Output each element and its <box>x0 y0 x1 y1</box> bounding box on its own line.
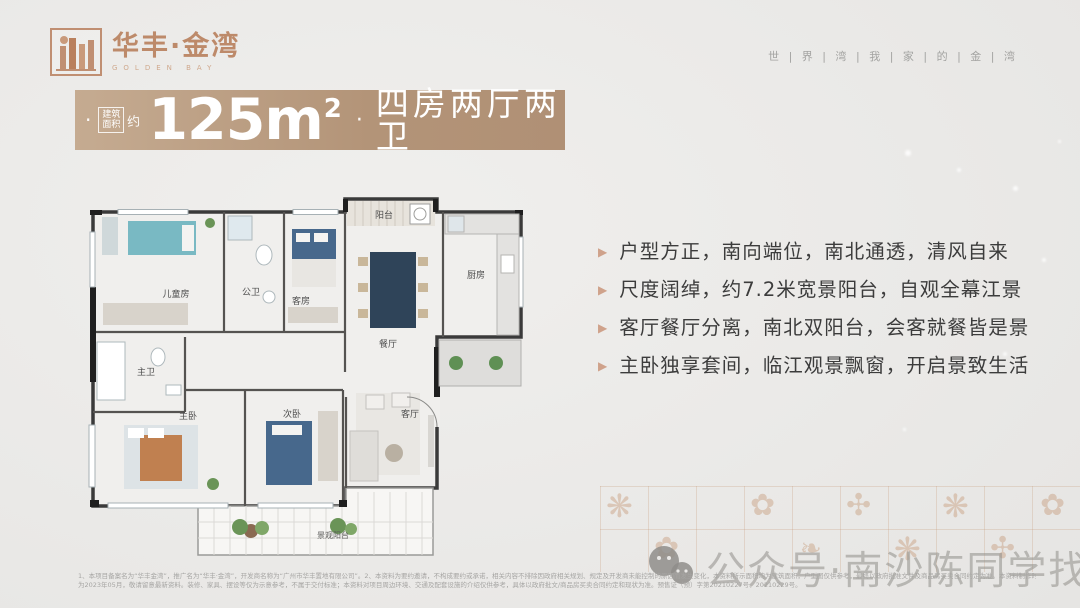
selling-point-text: 主卧独享套间，临江观景飘窗，开启景致生活 <box>619 354 1029 377</box>
room-label-kitchen: 厨房 <box>467 269 485 281</box>
brand-seal-icon <box>50 28 102 76</box>
room-label-guest-room: 客房 <box>292 295 310 307</box>
area-tag-box: 建筑 面积 <box>98 107 124 133</box>
area-tag-line1: 建筑 <box>102 110 120 120</box>
selling-point-text: 户型方正，南向端位，南北通透，清风自来 <box>619 240 1009 263</box>
selling-point-item: ▶ 户型方正，南向端位，南北通透，清风自来 <box>598 240 1029 263</box>
room-label-balcony-north: 阳台 <box>375 209 393 221</box>
area-tag-line2: 面积 <box>102 120 120 130</box>
room-label-master-bedroom: 主卧 <box>179 410 197 422</box>
second-bedroom-furniture <box>266 411 338 485</box>
guest-room-furniture <box>288 229 338 323</box>
triangle-bullet-icon: ▶ <box>598 360 607 372</box>
lattice-ornament <box>750 491 775 521</box>
lattice-ornament <box>942 490 969 522</box>
lattice-ornament <box>846 491 871 521</box>
lattice-ornament <box>606 490 633 522</box>
banner-dot-separator: · <box>356 108 363 133</box>
brand-name-en: GOLDEN BAY <box>112 64 240 72</box>
sparkle-decoration <box>1058 140 1061 143</box>
layout-text: 四房两厅两卫 <box>376 87 565 153</box>
selling-point-text: 尺度阔绰，约7.2米宽景阳台，自观全幕江景 <box>619 278 1022 301</box>
room-label-kids-room: 儿童房 <box>162 288 189 300</box>
triangle-bullet-icon: ▶ <box>598 322 607 334</box>
lattice-ornament <box>1040 491 1065 521</box>
area-number: 125m <box>148 87 322 153</box>
sparkle-decoration <box>905 150 911 156</box>
brand-logo: 华丰·金湾 GOLDEN BAY <box>50 28 240 76</box>
poster-canvas: 华丰·金湾 GOLDEN BAY 世 | 界 | 湾 | 我 | 家 | 的 |… <box>0 0 1080 608</box>
entry-ledge <box>439 340 521 386</box>
headline-banner: · 建筑 面积 约 125m2 · 四房两厅两卫 <box>75 90 565 150</box>
disclaimer-line1: 1、本项目备案名为“华丰金湾”，推广名为“华丰·金湾”，开发商名称为“广州市华丰… <box>78 572 1036 581</box>
sparkle-decoration <box>957 168 961 172</box>
room-label-second-bedroom: 次卧 <box>283 408 301 420</box>
triangle-bullet-icon: ▶ <box>598 246 607 258</box>
selling-point-item: ▶ 客厅餐厅分离，南北双阳台，会客就餐皆是景 <box>598 316 1029 339</box>
selling-point-item: ▶ 尺度阔绰，约7.2米宽景阳台，自观全幕江景 <box>598 278 1029 301</box>
sparkle-decoration <box>903 428 906 431</box>
selling-points-list: ▶ 户型方正，南向端位，南北通透，清风自来 ▶ 尺度阔绰，约7.2米宽景阳台，自… <box>598 240 1029 377</box>
disclaimer-line2: 为2023年05月，敬请留意最新资料。装修、家具、摆设等仅为示意参考，不属于交付… <box>78 581 1036 590</box>
selling-point-item: ▶ 主卧独享套间，临江观景飘窗，开启景致生活 <box>598 354 1029 377</box>
room-label-view-balcony: 景观阳台 <box>317 530 349 540</box>
header-tagline: 世 | 界 | 湾 | 我 | 家 | 的 | 金 | 湾 <box>768 48 1018 64</box>
selling-point-text: 客厅餐厅分离，南北双阳台，会客就餐皆是景 <box>619 316 1029 339</box>
washing-machine <box>410 204 430 224</box>
sparkle-decoration <box>1013 186 1018 191</box>
legal-disclaimer: 1、本项目备案名为“华丰金湾”，推广名为“华丰·金湾”，开发商名称为“广州市华丰… <box>78 572 1036 589</box>
room-label-living-room: 客厅 <box>401 408 419 420</box>
approx-label: 约 <box>126 110 141 130</box>
banner-dot: · <box>85 110 91 130</box>
room-label-dining: 餐厅 <box>379 338 397 350</box>
floorplan-diagram: 阳台 厨房 公卫 儿童房 客房 餐厅 主卫 主卧 次卧 客厅 景观阳台 <box>88 197 524 561</box>
brand-name-cn: 华丰·金湾 <box>112 33 240 60</box>
triangle-bullet-icon: ▶ <box>598 284 607 296</box>
room-label-bath-public: 公卫 <box>242 287 260 298</box>
room-label-bath-master: 主卫 <box>137 366 155 378</box>
area-superscript: 2 <box>324 94 341 124</box>
sparkle-decoration <box>1042 258 1046 262</box>
area-value: 125m2 <box>148 92 340 149</box>
